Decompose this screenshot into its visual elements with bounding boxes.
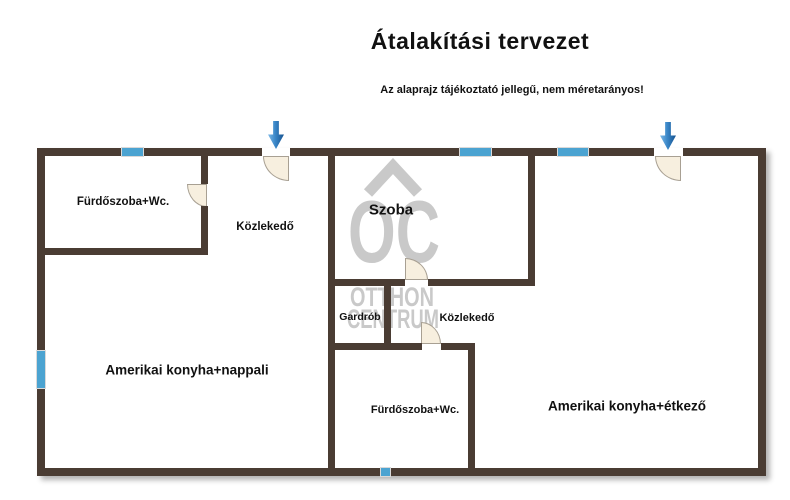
room-label-bathroom-lower: Fürdőszoba+Wc. [371, 404, 459, 416]
room-label-hallway-top: Közlekedő [236, 221, 294, 233]
wall-bathroom-lower-east [468, 348, 475, 472]
room-label-wardrobe: Gardrób [339, 311, 380, 323]
window-marker-bottom-small [380, 467, 391, 477]
wall-wardrobe-east [384, 284, 391, 345]
wall-left [37, 148, 45, 476]
entrance-arrow-icon-1 [268, 121, 284, 149]
room-label-kitchen-dining: Amerikai konyha+étkező [548, 399, 706, 414]
room-label-bedroom: Szoba [369, 202, 413, 219]
window-marker-left [36, 350, 46, 389]
wall-top-segment-1 [37, 148, 262, 156]
wall-bathroom-top-south [37, 248, 208, 255]
window-marker-top-3 [557, 147, 589, 157]
watermark-monogram: OC [348, 182, 440, 281]
room-label-bathroom-top: Fürdőszoba+Wc. [77, 196, 169, 208]
wall-top-segment-3 [683, 148, 766, 156]
wall-bathroom-lower-north-west [328, 343, 422, 350]
window-marker-top-1 [121, 147, 144, 157]
room-label-kitchen-living: Amerikai konyha+nappali [105, 363, 268, 378]
room-label-hallway-lower: Közlekedő [439, 312, 494, 324]
wall-right [758, 148, 766, 476]
wall-bottom [37, 468, 766, 476]
wall-bedroom-south-east [428, 279, 535, 286]
wall-center-vertical [328, 154, 335, 474]
wall-bathroom-top-east-lower [201, 206, 208, 255]
wall-bathroom-top-east-upper [201, 154, 208, 184]
wall-bedroom-south-west [328, 279, 405, 286]
floor-plan: OC OTTHON CENTRUM Fürdőszoba+Wc. Közleke… [0, 0, 790, 500]
window-marker-top-2 [459, 147, 492, 157]
entrance-arrow-icon-2 [660, 122, 676, 150]
wall-bedroom-east [528, 154, 535, 286]
